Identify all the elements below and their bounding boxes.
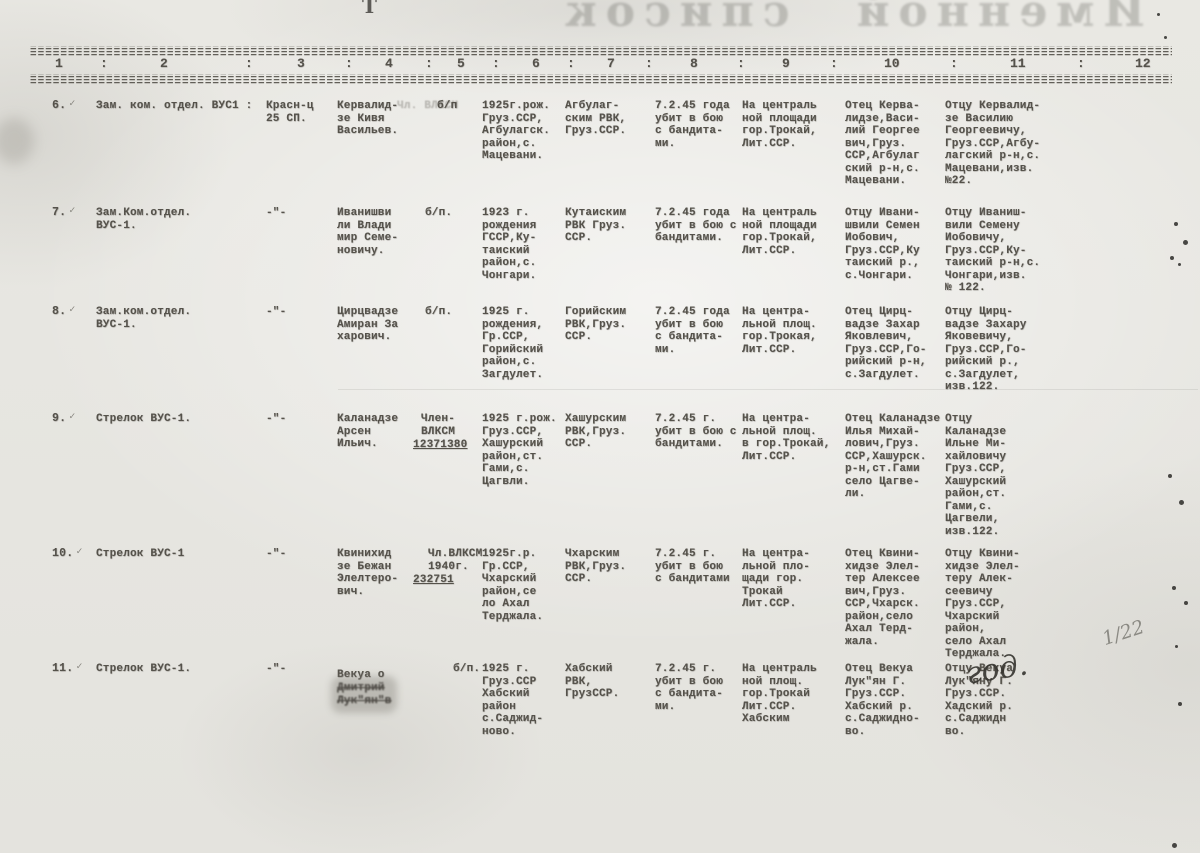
row-6-name: Кервалид- зе Кивя Васильев. [337,100,398,138]
row-9-burial: На центра- льной площ. в гор.Трокай, Лит… [742,413,830,463]
row-11-number: 11.✓ [52,663,83,677]
column-separator: : [1077,56,1085,71]
checkmark: ✓ [69,99,75,110]
row-10-rvk: Чхарским РВК,Груз. ССР. [565,548,626,586]
checkmark: ✓ [76,547,82,558]
row-9-position: Стрелок ВУС-1. [96,413,191,426]
ink-speck [1179,500,1184,505]
column-separator: : [950,56,958,71]
ink-speck [1183,240,1188,245]
column-separator: : [645,56,653,71]
checkmark: ✓ [69,305,75,316]
row-10-notify: Отцу Квини- хидзе Элел- теру Алек- сееви… [945,548,1020,661]
row-10-burial: На центра- льной пло- щади гор. Трокай Л… [742,548,810,611]
column-number-2: 2 [160,56,168,71]
row-9-notify: Отцу Каланадзе Ильне Ми- хайловичу Груз.… [945,413,1006,538]
ink-speck [1172,843,1177,848]
row-10-number: 10.✓ [52,548,83,562]
row-6-rvk: Агбулаг- ским РВК, Груз.ССР. [565,100,626,138]
row-7-death: 7.2.45 года убит в бою с бандитами. [655,207,737,245]
row-7-burial: На централь ной площади гор.Трокай, Лит.… [742,207,817,257]
row-7-notify: Отцу Иваниш- вили Семену Иобовичу, Груз.… [945,207,1040,295]
row-11-unit: -"- [266,663,286,676]
pencil-annotation: 1/22 [1100,616,1147,650]
row-11-burial: На централь ной площ. гор.Трокай Лит.ССР… [742,663,817,726]
ink-speck [1184,601,1188,605]
column-number-4: 4 [385,56,393,71]
column-separator: : [737,56,745,71]
row-10-birth: 1925г.р. Гр.ССР, Чхарский район,се ло Ах… [482,548,543,623]
row-6-unit: Красн-ц 25 СП. [266,100,314,125]
column-number-7: 7 [607,56,615,71]
column-separator: : [245,56,253,71]
row-6-number: 6.✓ [52,100,75,114]
ink-speck [1178,263,1181,266]
row-10-death: 7.2.45 г. убит в бою с бандитами [655,548,730,586]
column-number-3: 3 [297,56,305,71]
checkmark: ✓ [76,662,82,673]
ink-speck [1170,256,1174,260]
checkmark: ✓ [69,206,75,217]
row-10-party-num: 232751 [413,574,454,587]
row-9-rvk: Хашурским РВК,Груз. ССР. [565,413,626,451]
row-7-position: Зам.Ком.отдел. ВУС-1. [96,207,191,232]
row-9-party-num: 12371380 [413,439,467,452]
column-separator: : [492,56,500,71]
row-9-number: 9.✓ [52,413,75,427]
row-9-father: Отец Каланадзе Илья Михай- лович,Груз. С… [845,413,940,501]
ink-speck [1174,222,1178,226]
row-8-birth: 1925 г. рождения, Гр.ССР, Горийский райо… [482,306,543,381]
ink-speck [1157,13,1160,16]
row-8-death: 7.2.45 года убит в бою с бандита- ми. [655,306,730,356]
top-edge-mark: Т [362,0,377,18]
column-number-12: 12 [1135,56,1151,71]
row-8-rvk: Горийским РВК,Груз. ССР. [565,306,626,344]
row-7-name: Иванишви ли Влади мир Семе- новичу. [337,207,398,257]
ink-speck [1168,474,1172,478]
row-11-birth: 1925 г. Груз.ССР Хабский район с.Саджид-… [482,663,543,738]
column-number-5: 5 [457,56,465,71]
row-6-birth: 1925г.рож. Груз.ССР, Агбулагск. район,с.… [482,100,550,163]
ink-speck [1178,702,1182,706]
column-number-11: 11 [1010,56,1026,71]
row-6-notify: Отцу Кервалид- зе Василию Георгеевичу, Г… [945,100,1040,188]
ink-speck [1172,586,1176,590]
scanned-document-page: Именной список Т =======================… [0,0,1200,853]
left-edge-smear [0,118,34,164]
row-8-party: б/п. [425,306,452,319]
row-7-unit: -"- [266,207,286,220]
column-number-6: 6 [532,56,540,71]
row-11-party: б/п. [453,663,480,676]
row-10-party: Чл.ВЛКСМ 1940г. [428,548,482,573]
row-7-party: б/п. [425,207,452,220]
row-7-father: Отцу Ивани- швили Семен Иобович, Груз.СС… [845,207,920,282]
row-10-unit: -"- [266,548,286,561]
row-9-party: Член- ВЛКСМ [421,413,455,438]
row-9-birth: 1925 г.рож. Груз.ССР, Хашурский район,ст… [482,413,557,488]
row-8-position: Зам.ком.отдел. ВУС-1. [96,306,191,331]
row-8-number: 8.✓ [52,306,75,320]
paper-crease-line [338,389,1198,390]
row-7-rvk: Кутаиским РВК Груз. ССР. [565,207,626,245]
header-rule-top: ========================================… [30,46,1172,59]
row-7-number: 7.✓ [52,207,75,221]
row-8-unit: -"- [266,306,286,319]
bleedthrough-title: Именной список [425,0,1145,44]
column-number-1: 1 [55,56,63,71]
row-6-death: 7.2.45 года убит в бою с бандита- ми. [655,100,730,150]
row-8-name: Цирцвадзе Амиран За харович. [337,306,398,344]
row-6-position: Зам. ком. отдел. ВУС1 : [96,100,252,113]
row-8-burial: На центра- льной площ. гор.Трокая, Лит.С… [742,306,817,356]
header-rule-bottom: ========================================… [30,74,1172,87]
row-9-death: 7.2.45 г. убит в бою с бандитами. [655,413,737,451]
column-separator: : [830,56,838,71]
column-number-8: 8 [690,56,698,71]
row-11-name: Векуа о [337,669,385,682]
row-9-name: Каланадзе Арсен Ильич. [337,413,398,451]
row-10-position: Стрелок ВУС-1 [96,548,184,561]
row-9-unit: -"- [266,413,286,426]
row-10-name: Квинихид зе Бежан Элелтеро- вич. [337,548,398,598]
ink-speck [1164,36,1167,39]
row-10-father: Отец Квини- хидзе Элел- тер Алексее вич,… [845,548,920,648]
row-11-name-smudged: Дмитрий Лук"ян"в [337,682,391,707]
column-number-10: 10 [884,56,900,71]
row-6-party: б/п [437,100,457,113]
column-number-9: 9 [782,56,790,71]
row-11-father: Отец Векуа Лук"ян Г. Груз.ССР. Хабский р… [845,663,920,738]
row-11-death: 7.2.45 г. убит в бою с бандита- ми. [655,663,723,713]
row-6-father: Отец Керва- лидзе,Васи- лий Георгее вич,… [845,100,920,188]
column-separator: : [567,56,575,71]
row-11-rvk: Хабский РВК, ГрузССР. [565,663,619,701]
row-8-father: Отец Цирц- вадзе Захар Яковлевич, Груз.С… [845,306,927,381]
checkmark: ✓ [69,412,75,423]
ink-speck [1175,645,1178,648]
row-11-position: Стрелок ВУС-1. [96,663,191,676]
row-6-burial: На централь ной площади гор.Трокай, Лит.… [742,100,817,150]
column-separator: : [425,56,433,71]
row-8-notify: Отцу Цирц- вадзе Захару Яковевичу, Груз.… [945,306,1027,394]
row-7-birth: 1923 г. рождения ГССР,Ку- таиский район,… [482,207,536,282]
column-separator: : [100,56,108,71]
column-separator: : [345,56,353,71]
